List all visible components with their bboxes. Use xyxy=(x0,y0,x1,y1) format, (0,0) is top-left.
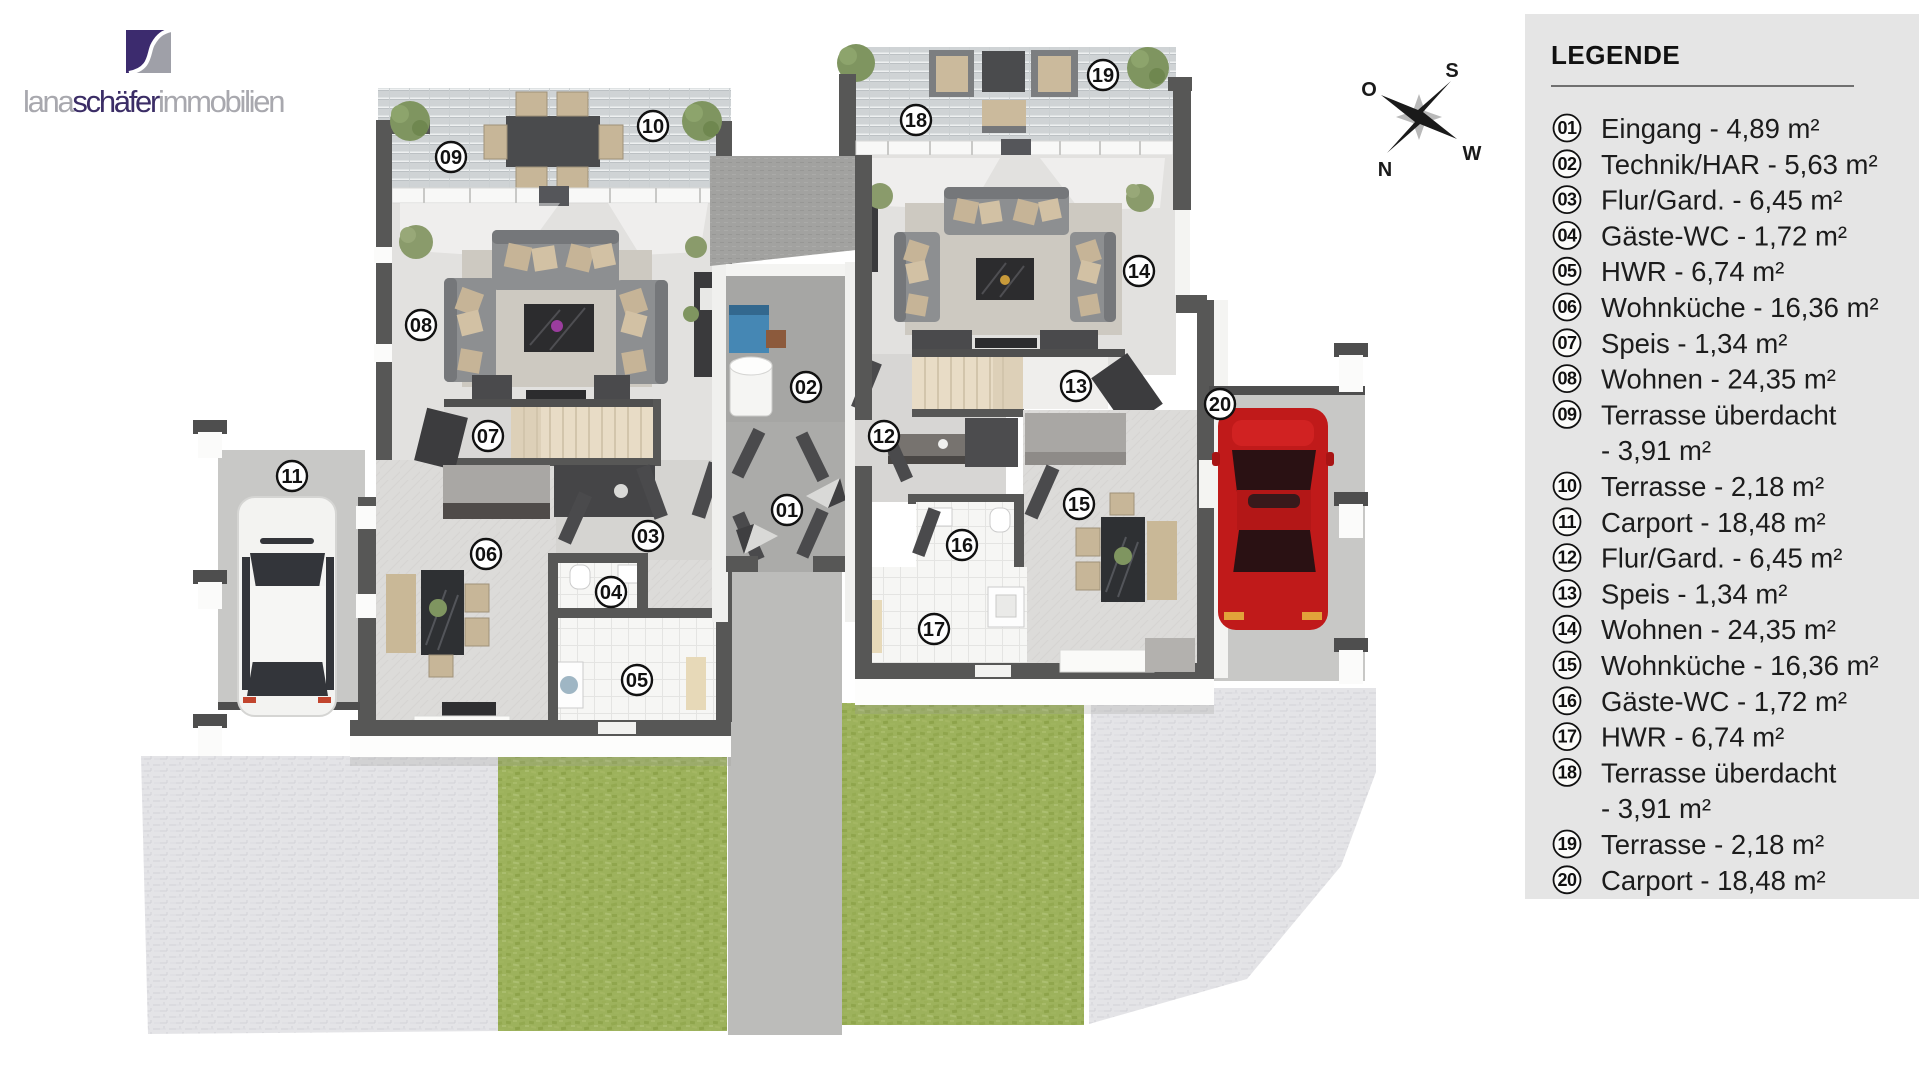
svg-text:Gäste-WC - 1,72 m²: Gäste-WC - 1,72 m² xyxy=(1601,220,1847,251)
svg-text:Technik/HAR - 5,63 m²: Technik/HAR - 5,63 m² xyxy=(1601,149,1878,180)
svg-text:Terrasse - 2,18 m²: Terrasse - 2,18 m² xyxy=(1601,829,1824,860)
svg-text:13: 13 xyxy=(1065,376,1087,398)
svg-text:18: 18 xyxy=(905,110,927,132)
svg-text:17: 17 xyxy=(923,619,945,641)
svg-text:Eingang - 4,89 m²: Eingang - 4,89 m² xyxy=(1601,113,1820,144)
svg-text:Flur/Gard. - 6,45 m²: Flur/Gard. - 6,45 m² xyxy=(1601,543,1842,574)
svg-text:17: 17 xyxy=(1557,727,1577,747)
svg-text:Wohnküche - 16,36 m²: Wohnküche - 16,36 m² xyxy=(1601,292,1879,323)
svg-text:16: 16 xyxy=(1557,691,1577,711)
svg-text:Carport - 18,48 m²: Carport - 18,48 m² xyxy=(1601,865,1826,896)
svg-text:06: 06 xyxy=(1557,297,1577,317)
svg-text:02: 02 xyxy=(795,377,817,399)
svg-text:Wohnen - 24,35 m²: Wohnen - 24,35 m² xyxy=(1601,614,1836,645)
svg-text:09: 09 xyxy=(440,147,462,169)
svg-text:Wohnen - 24,35 m²: Wohnen - 24,35 m² xyxy=(1601,364,1836,395)
svg-text:09: 09 xyxy=(1557,404,1577,424)
svg-text:01: 01 xyxy=(1557,118,1577,138)
svg-text:11: 11 xyxy=(1558,512,1577,532)
svg-text:12: 12 xyxy=(1557,548,1577,568)
svg-text:HWR - 6,74 m²: HWR - 6,74 m² xyxy=(1601,722,1784,753)
svg-text:15: 15 xyxy=(1557,655,1577,675)
svg-text:Terrasse überdacht: Terrasse überdacht xyxy=(1601,757,1837,788)
svg-text:03: 03 xyxy=(637,526,659,548)
svg-text:07: 07 xyxy=(477,426,499,448)
svg-text:01: 01 xyxy=(776,500,798,522)
svg-text:19: 19 xyxy=(1092,65,1114,87)
svg-text:Gäste-WC - 1,72 m²: Gäste-WC - 1,72 m² xyxy=(1601,686,1847,717)
svg-text:05: 05 xyxy=(1557,261,1577,281)
svg-text:16: 16 xyxy=(951,535,973,557)
svg-text:08: 08 xyxy=(1557,369,1577,389)
svg-text:10: 10 xyxy=(1557,476,1577,496)
svg-text:O: O xyxy=(1361,79,1377,101)
svg-text:W: W xyxy=(1463,143,1482,165)
svg-text:Terrasse - 2,18 m²: Terrasse - 2,18 m² xyxy=(1601,471,1824,502)
svg-text:08: 08 xyxy=(410,315,432,337)
svg-text:07: 07 xyxy=(1557,333,1577,353)
svg-text:- 3,91 m²: - 3,91 m² xyxy=(1601,793,1711,824)
svg-text:19: 19 xyxy=(1557,834,1577,854)
svg-text:Terrasse überdacht: Terrasse überdacht xyxy=(1601,399,1837,430)
svg-text:10: 10 xyxy=(642,116,664,138)
svg-text:11: 11 xyxy=(281,466,302,488)
svg-text:lanaschäferimmobilien: lanaschäferimmobilien xyxy=(23,84,284,119)
svg-text:03: 03 xyxy=(1557,190,1577,210)
svg-text:04: 04 xyxy=(1557,225,1577,245)
svg-text:04: 04 xyxy=(600,582,623,604)
svg-text:Speis - 1,34 m²: Speis - 1,34 m² xyxy=(1601,328,1787,359)
svg-text:Wohnküche - 16,36 m²: Wohnküche - 16,36 m² xyxy=(1601,650,1879,681)
svg-text:Carport - 18,48 m²: Carport - 18,48 m² xyxy=(1601,507,1826,538)
svg-text:LEGENDE: LEGENDE xyxy=(1551,40,1680,70)
svg-text:Speis - 1,34 m²: Speis - 1,34 m² xyxy=(1601,578,1787,609)
svg-text:20: 20 xyxy=(1209,394,1231,416)
svg-text:18: 18 xyxy=(1557,762,1577,782)
svg-text:12: 12 xyxy=(873,426,895,448)
svg-text:N: N xyxy=(1378,159,1392,181)
svg-text:05: 05 xyxy=(626,670,648,692)
svg-text:14: 14 xyxy=(1557,619,1577,639)
svg-text:13: 13 xyxy=(1557,583,1577,603)
svg-text:15: 15 xyxy=(1068,494,1090,516)
svg-text:20: 20 xyxy=(1557,870,1577,890)
svg-text:S: S xyxy=(1445,60,1458,82)
svg-text:14: 14 xyxy=(1128,261,1151,283)
svg-text:HWR - 6,74 m²: HWR - 6,74 m² xyxy=(1601,256,1784,287)
svg-text:- 3,91 m²: - 3,91 m² xyxy=(1601,435,1711,466)
svg-text:Flur/Gard. - 6,45 m²: Flur/Gard. - 6,45 m² xyxy=(1601,185,1842,216)
svg-text:06: 06 xyxy=(475,544,497,566)
svg-text:02: 02 xyxy=(1557,154,1577,174)
